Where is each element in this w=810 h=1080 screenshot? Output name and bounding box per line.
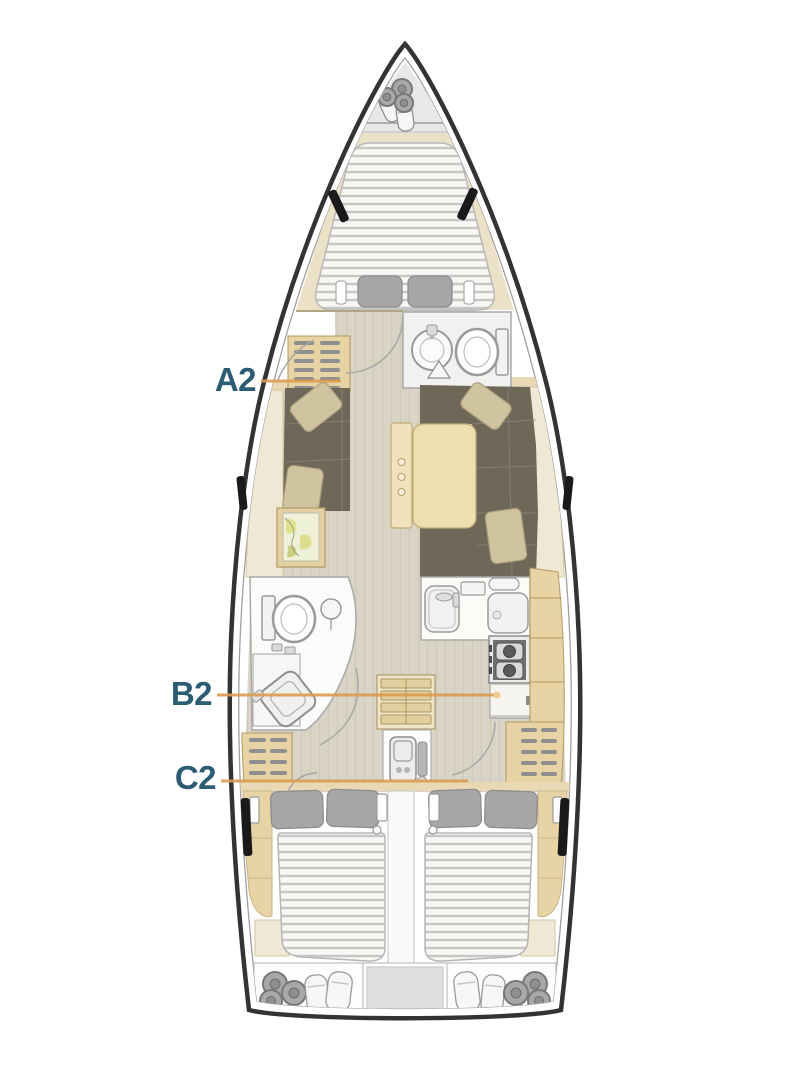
yacht-floorplan-page: A2 B2 C2 — [0, 0, 810, 1080]
aft-cabin-starboard — [425, 789, 567, 961]
double-berth-mattress — [278, 833, 385, 961]
cutting-board — [461, 582, 485, 595]
cabin-label-c2: C2 — [175, 759, 216, 796]
stove-icon — [489, 636, 530, 683]
interior — [238, 62, 572, 1015]
door-knob-icon — [373, 826, 381, 834]
fender-icon — [325, 971, 354, 1013]
shelves-starboard — [506, 722, 564, 784]
door-jamb — [429, 794, 439, 821]
galley-locker — [490, 684, 530, 716]
sink-icon — [321, 599, 341, 619]
pillow — [485, 508, 528, 565]
aft-cabin-port — [243, 789, 387, 961]
pillow — [326, 789, 379, 828]
door-jamb — [377, 794, 387, 821]
saloon-table — [391, 423, 476, 528]
yacht-floorplan-svg: A2 B2 C2 — [0, 0, 810, 1080]
chart-table — [277, 508, 325, 567]
toilet-icon — [273, 596, 315, 642]
shelves-port — [242, 733, 292, 784]
reading-light-icon — [336, 281, 346, 304]
engine-compartment — [383, 730, 431, 788]
fender-icon — [453, 971, 482, 1013]
galley-cabinets — [530, 568, 564, 722]
pillow — [408, 276, 452, 307]
double-berth-mattress — [425, 833, 532, 961]
door-jamb — [250, 797, 259, 823]
reading-light-icon — [464, 281, 474, 304]
faucet-icon — [436, 593, 452, 601]
forward-head — [403, 312, 511, 388]
pillow — [358, 276, 402, 307]
forward-cabin — [296, 133, 514, 311]
aft-cabin-divider — [388, 791, 414, 966]
pillow — [484, 790, 537, 829]
toilet-icon — [456, 329, 498, 375]
faucet-icon — [427, 325, 437, 335]
tray — [489, 578, 519, 590]
cabin-label-b2: B2 — [171, 675, 212, 712]
pillow — [270, 790, 323, 829]
cabin-label-a2: A2 — [215, 361, 256, 398]
leader-dot-b2 — [494, 692, 501, 699]
companionway-stairs — [377, 675, 435, 729]
table-top — [413, 424, 476, 528]
door-knob-icon — [429, 826, 437, 834]
liferaft-locker — [367, 967, 443, 1013]
